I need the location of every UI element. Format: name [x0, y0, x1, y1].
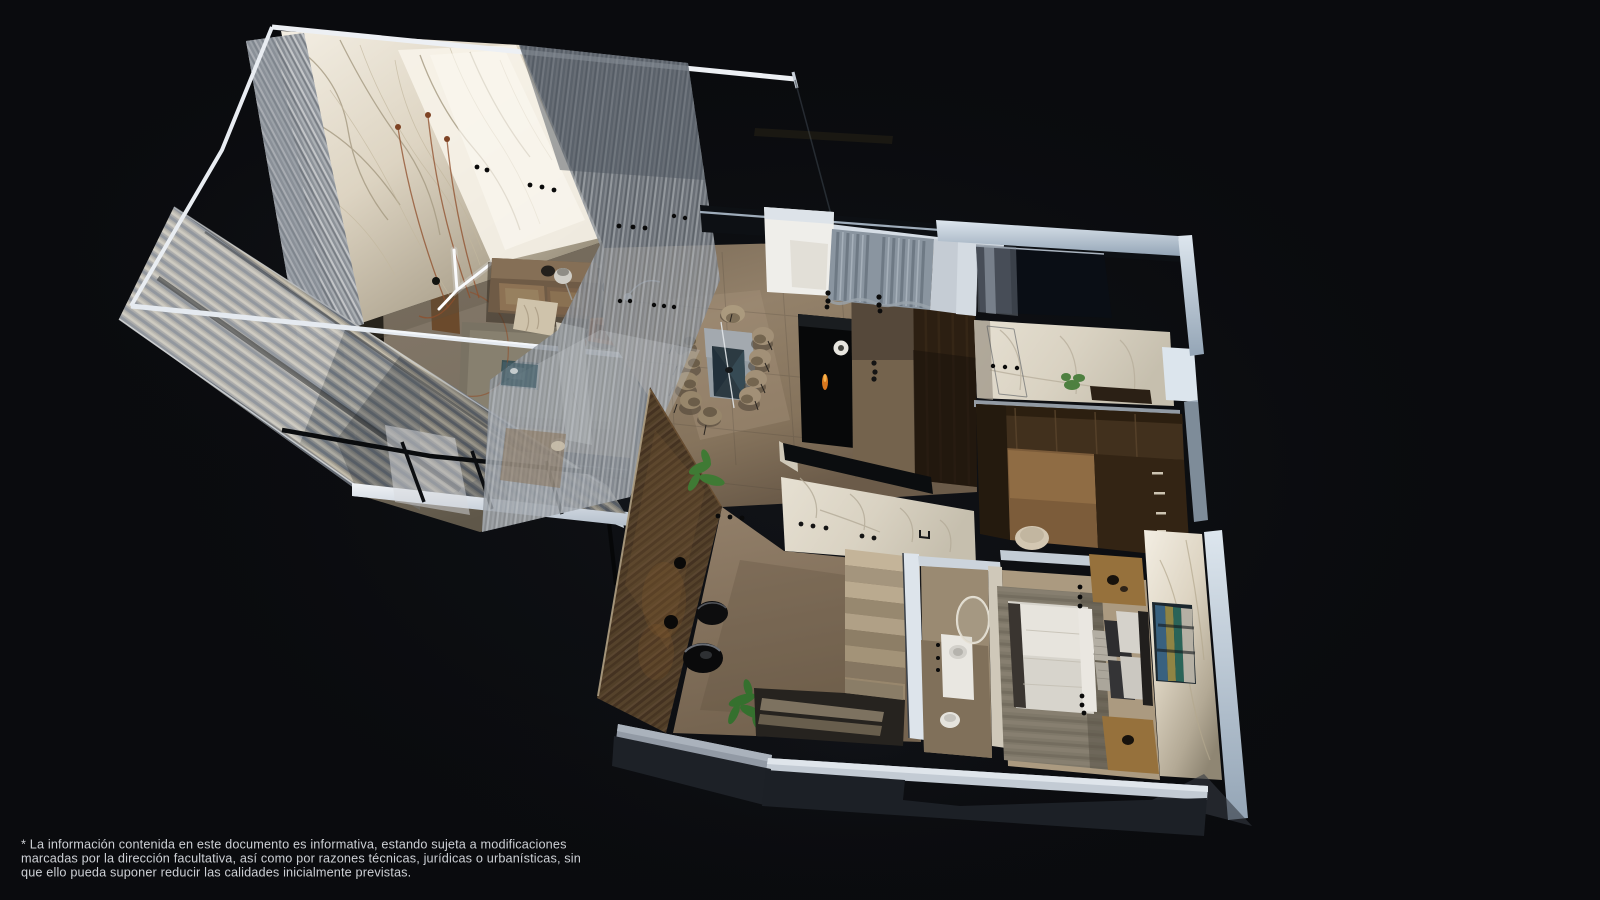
svg-text:* La información contenida en: * La información contenida en este docum… [21, 838, 567, 852]
svg-text:marcadas por la dirección facu: marcadas por la dirección facultativa, a… [21, 852, 581, 866]
svg-text:que ello pueda suponer reducir: que ello pueda suponer reducir las calid… [21, 866, 411, 880]
